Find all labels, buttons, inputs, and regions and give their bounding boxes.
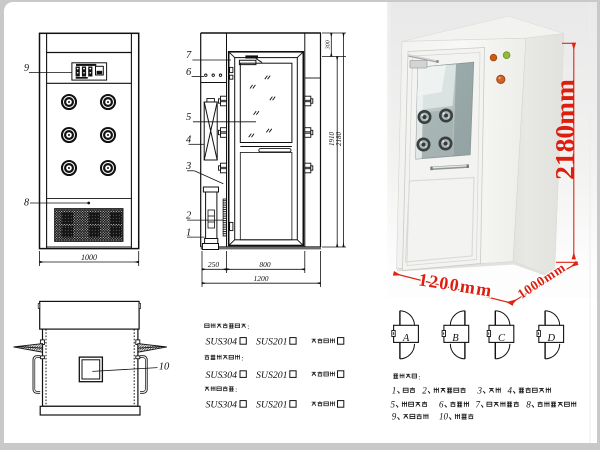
svg-text:5: 5 [186, 112, 191, 123]
svg-text:A: A [402, 333, 410, 344]
svg-text:7: 7 [476, 399, 481, 409]
svg-text::: : [241, 354, 243, 363]
svg-text:6: 6 [439, 399, 444, 409]
svg-text:3: 3 [185, 161, 191, 172]
svg-text:SUS304: SUS304 [206, 370, 238, 381]
svg-text:C: C [498, 333, 506, 344]
svg-text:1200: 1200 [254, 274, 269, 283]
svg-text:4: 4 [508, 385, 513, 395]
svg-text:9: 9 [392, 412, 397, 422]
svg-text:D: D [547, 333, 556, 344]
svg-text:7: 7 [186, 50, 192, 61]
svg-text:800: 800 [259, 260, 271, 269]
svg-text:9: 9 [24, 63, 29, 74]
svg-text:8: 8 [24, 198, 29, 209]
svg-text:300: 300 [326, 40, 332, 50]
svg-text:1000: 1000 [81, 253, 97, 262]
svg-text:SUS304: SUS304 [206, 337, 238, 348]
svg-text:250: 250 [208, 260, 220, 269]
svg-text:B: B [452, 333, 459, 344]
svg-text:SUS201: SUS201 [256, 337, 288, 348]
svg-text:SUS304: SUS304 [206, 400, 238, 411]
svg-text::: : [418, 372, 420, 381]
svg-text:2: 2 [422, 385, 427, 395]
svg-text:8: 8 [526, 399, 531, 409]
svg-text:SUS201: SUS201 [256, 400, 288, 411]
svg-text:1: 1 [392, 385, 397, 395]
svg-text:SUS201: SUS201 [256, 370, 288, 381]
svg-text::: : [235, 385, 237, 394]
svg-text:5: 5 [391, 399, 396, 409]
svg-text:3: 3 [477, 385, 483, 395]
svg-text::: : [247, 322, 249, 331]
svg-text:10: 10 [439, 412, 449, 422]
svg-text:10: 10 [159, 362, 170, 373]
svg-text:2180: 2180 [335, 132, 343, 147]
svg-text:2180mm: 2180mm [549, 79, 580, 180]
svg-text:6: 6 [186, 67, 192, 78]
